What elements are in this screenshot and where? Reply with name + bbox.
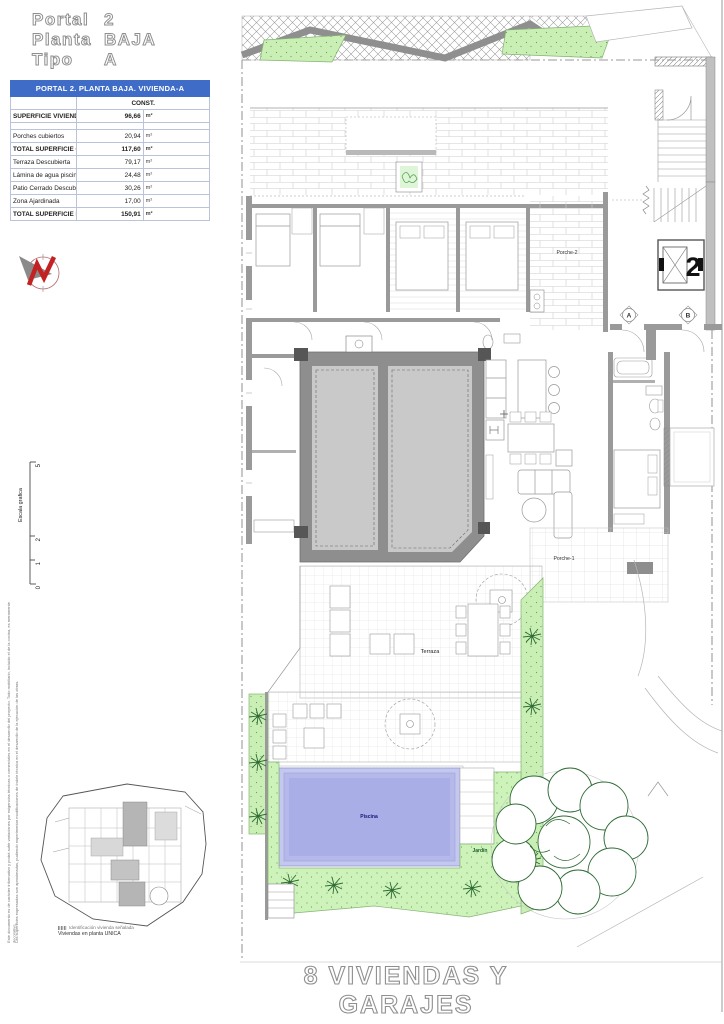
scale-tick-0: 0	[36, 585, 42, 589]
outdoor-table	[468, 604, 498, 656]
row-value: 20,94	[77, 130, 143, 143]
row-value: 24,48	[77, 169, 143, 182]
sofa	[518, 470, 570, 494]
portal-value: 2	[104, 10, 115, 30]
row-unit: m²	[143, 130, 209, 143]
keyplan-legend-line1: Identificación vivienda señalada	[69, 925, 134, 930]
areas-table: PORTAL 2. PLANTA BAJA. VIVIENDA-A CONST.…	[10, 80, 210, 221]
bed	[256, 214, 290, 266]
kitchen-island	[518, 360, 546, 418]
jardin-label: Jardín	[472, 848, 487, 854]
row-label: TOTAL SUPERFICIE DESCUBIERTA	[11, 208, 77, 221]
row-unit: m²	[143, 143, 209, 156]
row-label: Patio Cerrado Descubierto	[11, 182, 77, 195]
section-marker-b: B	[679, 306, 697, 324]
keyplan-caption: Identificación vivienda señalada Viviend…	[58, 925, 198, 937]
scale-label: Escala grafica	[18, 488, 24, 522]
keyplan-highlight-unit	[123, 802, 147, 846]
row-label: SUPERFICIE VIVIENDA CUBIERTA	[11, 110, 77, 123]
row-value: 17,00	[77, 195, 143, 208]
row-label: TOTAL SUPERFICIE CUBIERTA	[11, 143, 77, 156]
row-value: 150,91	[77, 208, 143, 221]
tipo-value: A	[104, 50, 118, 70]
row-label: Zona Ajardinada	[11, 195, 77, 208]
section-b-label: B	[686, 313, 691, 320]
const-col-header: CONST.	[77, 97, 210, 110]
porche-1-label: Porche-1	[553, 556, 574, 562]
tipo-label: Tipo	[32, 50, 104, 70]
scale-tick-1: 1	[36, 561, 42, 565]
sheet-title: 8 VIVIENDAS Y GARAJES	[234, 962, 578, 1020]
row-value: 96,66	[77, 110, 143, 123]
keyplan-legend-swatch	[58, 926, 67, 930]
key-plan	[35, 782, 211, 932]
central-patio-block	[294, 336, 491, 562]
row-label: Lámina de agua piscina	[11, 169, 77, 182]
portal-number-label: 2	[685, 252, 700, 282]
bedroom-right	[614, 450, 660, 524]
row-unit: m²	[143, 195, 209, 208]
row-value: 30,26	[77, 182, 143, 195]
terrace: Terraza	[268, 566, 542, 762]
row-value: 79,17	[77, 156, 143, 169]
bed	[320, 214, 360, 266]
side-disclaimer-line2: Las superficies expresadas son aproximad…	[14, 598, 26, 943]
scale-tick-5: 5	[36, 463, 42, 467]
terraza-label: Terraza	[421, 649, 441, 655]
dining-table	[508, 424, 554, 452]
portal-label: Portal	[32, 10, 104, 30]
wardrobe	[364, 208, 384, 234]
kitchen-living	[486, 360, 572, 538]
planta-label: Planta	[32, 30, 104, 50]
row-unit: m²	[143, 182, 209, 195]
row-unit: m²	[143, 156, 209, 169]
section-marker-a: A	[620, 306, 638, 324]
section-a-label: A	[627, 313, 632, 320]
planta-value: BAJA	[104, 30, 156, 50]
portal-2-marker: 2	[658, 240, 704, 290]
floor-plan: Porche-2	[234, 0, 724, 1012]
wardrobe	[292, 208, 312, 234]
row-unit: m²	[143, 110, 209, 123]
row-value: 117,60	[77, 143, 143, 156]
north-arrow-icon	[16, 246, 68, 298]
scale-tick-2: 2	[36, 537, 42, 541]
header-planta: Planta BAJA	[32, 30, 156, 50]
row-label: Porches cubiertos	[11, 130, 77, 143]
header-tipo: Tipo A	[32, 50, 156, 70]
front-yard	[250, 108, 608, 195]
bathroom	[613, 358, 663, 430]
row-unit: m²	[143, 169, 209, 182]
graphic-scale: 5 2 1 0 Escala grafica	[10, 452, 52, 594]
sheet-header: Portal 2 Planta BAJA Tipo A	[32, 10, 156, 70]
header-portal: Portal 2	[32, 10, 156, 30]
piscina-label: Piscina	[360, 814, 378, 820]
garden-stair	[268, 884, 294, 918]
row-unit: m²	[143, 208, 209, 221]
porche-2-label: Porche-2	[556, 250, 577, 256]
bedrooms	[256, 208, 526, 312]
plan-sheet: Portal 2 Planta BAJA Tipo A PORTAL 2. PL…	[0, 0, 724, 1024]
keyplan-legend-line2: Viviendas en planta UNICA	[58, 931, 198, 937]
blank-cell	[11, 97, 77, 110]
row-label: Terraza Descubierta	[11, 156, 77, 169]
areas-table-wrap: PORTAL 2. PLANTA BAJA. VIVIENDA-A CONST.…	[10, 80, 210, 221]
areas-table-title: PORTAL 2. PLANTA BAJA. VIVIENDA-A	[11, 81, 210, 97]
spacer-cell	[11, 123, 77, 130]
